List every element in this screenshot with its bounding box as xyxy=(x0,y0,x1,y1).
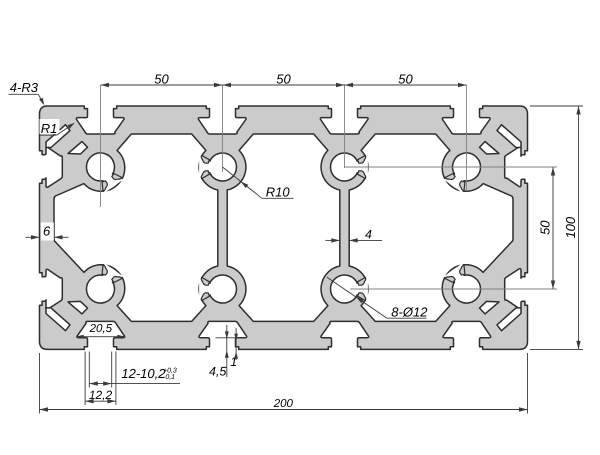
svg-text:4,5: 4,5 xyxy=(209,365,226,379)
svg-text:8-Ø12: 8-Ø12 xyxy=(391,304,428,319)
svg-text:12-10,2: 12-10,2 xyxy=(121,366,166,381)
svg-text:50: 50 xyxy=(538,220,553,235)
svg-text:4-R3: 4-R3 xyxy=(10,80,39,95)
svg-text:12,2: 12,2 xyxy=(89,388,113,402)
svg-text:4: 4 xyxy=(365,228,372,242)
svg-text:1: 1 xyxy=(230,355,237,369)
svg-text:6: 6 xyxy=(43,224,51,239)
svg-text:50: 50 xyxy=(276,72,291,87)
svg-text:R1: R1 xyxy=(41,121,58,136)
svg-text:100: 100 xyxy=(563,216,578,238)
svg-text:200: 200 xyxy=(273,398,294,410)
svg-text:20,5: 20,5 xyxy=(89,323,113,335)
svg-text:50: 50 xyxy=(154,72,169,87)
svg-text:-0,1: -0,1 xyxy=(163,374,175,381)
svg-text:50: 50 xyxy=(398,72,413,87)
svg-text:R10: R10 xyxy=(266,185,291,200)
